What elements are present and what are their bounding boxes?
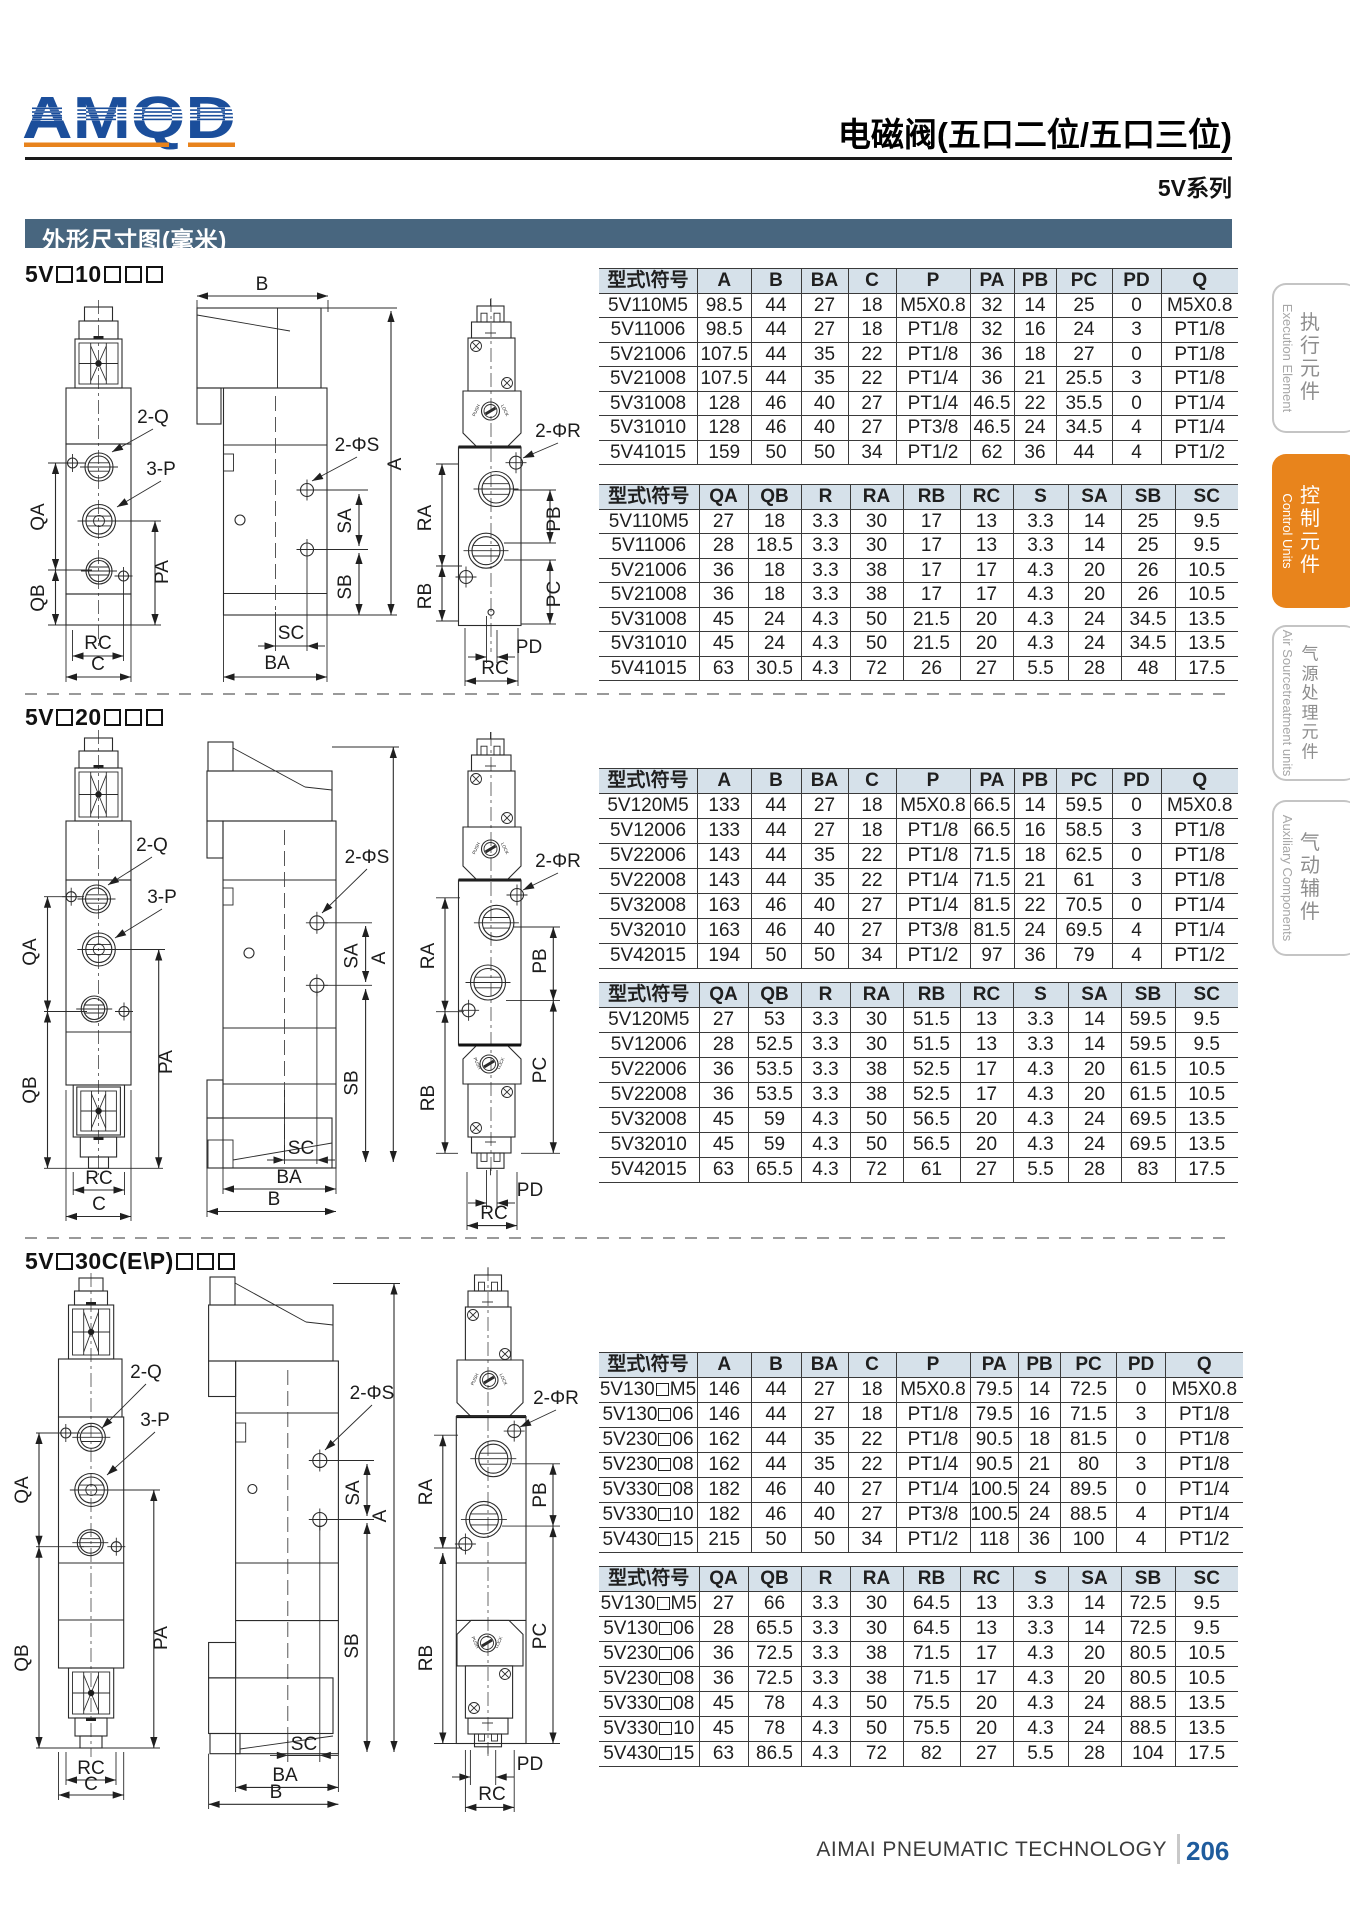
svg-text:RB: RB bbox=[416, 1645, 437, 1671]
svg-text:C: C bbox=[84, 1774, 98, 1795]
svg-text:PB: PB bbox=[530, 1482, 551, 1507]
svg-text:PA: PA bbox=[151, 1626, 172, 1650]
svg-text:2-ΦR: 2-ΦR bbox=[533, 1388, 579, 1409]
svg-text:2-ΦS: 2-ΦS bbox=[345, 847, 390, 868]
svg-text:QA: QA bbox=[28, 503, 49, 531]
svg-text:RC: RC bbox=[481, 658, 508, 679]
svg-text:LOCK: LOCK bbox=[496, 1057, 506, 1070]
svg-text:RC: RC bbox=[84, 633, 111, 654]
svg-text:2-Q: 2-Q bbox=[137, 407, 169, 428]
svg-text:QA: QA bbox=[20, 938, 41, 966]
svg-text:PUSH: PUSH bbox=[471, 404, 481, 417]
svg-text:B: B bbox=[270, 1782, 283, 1803]
svg-text:SA: SA bbox=[343, 1480, 364, 1506]
svg-text:SB: SB bbox=[342, 1633, 363, 1658]
svg-text:LOCK: LOCK bbox=[499, 1373, 509, 1386]
svg-text:QB: QB bbox=[20, 1076, 41, 1103]
svg-text:SC: SC bbox=[291, 1734, 317, 1755]
svg-text:A: A bbox=[369, 951, 390, 964]
svg-text:PC: PC bbox=[530, 1057, 551, 1083]
svg-text:RA: RA bbox=[416, 1478, 437, 1505]
svg-text:RB: RB bbox=[415, 583, 436, 609]
svg-text:3-P: 3-P bbox=[147, 887, 177, 908]
svg-text:PUSH: PUSH bbox=[471, 842, 481, 855]
svg-text:RB: RB bbox=[418, 1085, 439, 1111]
svg-text:LOCK: LOCK bbox=[500, 404, 510, 417]
svg-text:PD: PD bbox=[517, 1180, 543, 1201]
svg-text:PD: PD bbox=[516, 637, 542, 658]
svg-text:PC: PC bbox=[530, 1623, 551, 1649]
svg-text:2-ΦS: 2-ΦS bbox=[350, 1383, 395, 1404]
svg-text:PB: PB bbox=[530, 948, 551, 973]
svg-text:PA: PA bbox=[152, 560, 173, 584]
svg-text:PD: PD bbox=[517, 1754, 543, 1775]
svg-text:SB: SB bbox=[335, 574, 356, 599]
svg-text:BA: BA bbox=[276, 1167, 302, 1188]
svg-text:2-Q: 2-Q bbox=[130, 1362, 162, 1383]
svg-text:RC: RC bbox=[478, 1784, 505, 1805]
svg-text:A: A bbox=[370, 1509, 391, 1522]
svg-text:C: C bbox=[92, 1194, 106, 1215]
svg-text:3-P: 3-P bbox=[146, 459, 176, 480]
svg-text:B: B bbox=[256, 274, 269, 295]
svg-text:SC: SC bbox=[288, 1138, 314, 1159]
svg-text:SA: SA bbox=[335, 508, 356, 534]
svg-text:2-Q: 2-Q bbox=[136, 835, 168, 856]
svg-text:PUSH: PUSH bbox=[472, 1057, 482, 1070]
svg-text:RC: RC bbox=[85, 1168, 112, 1189]
svg-text:QB: QB bbox=[28, 584, 49, 611]
svg-text:3-P: 3-P bbox=[140, 1410, 170, 1431]
svg-text:A: A bbox=[385, 457, 406, 470]
svg-text:PUSH: PUSH bbox=[470, 1636, 480, 1649]
svg-text:SA: SA bbox=[342, 943, 363, 969]
svg-text:RA: RA bbox=[415, 504, 436, 531]
svg-text:BA: BA bbox=[264, 653, 290, 674]
svg-text:LOCK: LOCK bbox=[500, 842, 510, 855]
svg-text:SC: SC bbox=[278, 623, 304, 644]
svg-text:SB: SB bbox=[342, 1070, 363, 1095]
svg-text:2-ΦR: 2-ΦR bbox=[535, 851, 581, 872]
svg-text:QB: QB bbox=[12, 1644, 33, 1671]
svg-text:PB: PB bbox=[544, 506, 565, 531]
svg-text:PC: PC bbox=[544, 581, 565, 607]
svg-text:2-ΦS: 2-ΦS bbox=[335, 435, 380, 456]
svg-text:B: B bbox=[268, 1189, 281, 1210]
svg-text:C: C bbox=[91, 654, 105, 675]
svg-text:PUSH: PUSH bbox=[470, 1373, 480, 1386]
svg-text:QA: QA bbox=[12, 1476, 33, 1504]
svg-text:2-ΦR: 2-ΦR bbox=[535, 421, 581, 442]
svg-text:PA: PA bbox=[156, 1050, 177, 1074]
svg-text:RA: RA bbox=[418, 942, 439, 969]
svg-text:RC: RC bbox=[480, 1203, 507, 1224]
svg-text:LOCK: LOCK bbox=[494, 1636, 504, 1649]
